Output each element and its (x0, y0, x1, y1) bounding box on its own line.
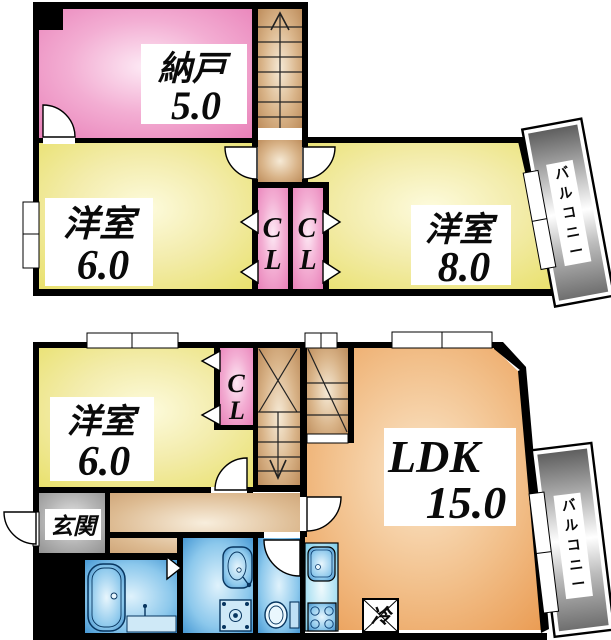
svg-text:コ: コ (566, 538, 582, 555)
lower-floor: 冷 (4, 332, 611, 640)
window-west6-upper (23, 202, 39, 268)
door-gap-toilet (264, 532, 300, 538)
closet-right-l: L (298, 245, 316, 276)
closet-left-c: C (263, 213, 282, 244)
svg-text:ル: ル (558, 186, 574, 203)
svg-text:ル: ル (563, 518, 579, 535)
closet-lower-l: L (228, 396, 245, 425)
toilet-tank (290, 602, 299, 628)
ldk-label: LDK (387, 431, 483, 482)
kitchen-counter (305, 543, 338, 631)
stairs-down-left-run (258, 348, 300, 485)
refrigerator-label: 冷 (371, 605, 394, 628)
upper-floor: バ ル コ ニ ー 納戸 5.0 洋室 6.0 洋室 8.0 C L C L (23, 2, 611, 308)
door-arc-entrance (4, 512, 36, 544)
west6-upper-size: 6.0 (77, 243, 130, 289)
stairs-landing (258, 140, 302, 182)
svg-text:ニ: ニ (565, 225, 581, 242)
toilet (265, 602, 299, 628)
stairs-bottom-landing (307, 434, 348, 443)
svg-text:ー: ー (571, 577, 587, 594)
svg-text:バ: バ (554, 165, 571, 183)
svg-text:ニ: ニ (568, 558, 584, 575)
bath-counter (127, 616, 176, 632)
west6-upper-label: 洋室 (63, 204, 140, 244)
entrance-label: 玄関 (50, 514, 100, 539)
ldk-size: 15.0 (426, 477, 507, 528)
floor-plan: バ ル コ ニ ー 納戸 5.0 洋室 6.0 洋室 8.0 C L C L (0, 0, 611, 640)
west8-label: 洋室 (425, 211, 498, 249)
closet-right-c: C (298, 213, 317, 244)
refrigerator: 冷 (363, 599, 398, 632)
closet-lower-c: C (227, 369, 245, 398)
wash-basin (223, 547, 252, 588)
door-gap-storage (43, 137, 75, 144)
west8-size: 8.0 (438, 245, 491, 291)
svg-text:ー: ー (568, 244, 584, 261)
svg-text:コ: コ (561, 205, 577, 222)
stairs-opening (258, 128, 302, 140)
storage-size: 5.0 (171, 83, 221, 128)
west6-lower-label: 洋室 (67, 403, 140, 441)
svg-text:バ: バ (561, 497, 577, 515)
west6-lower-size: 6.0 (78, 439, 131, 485)
closet-left-l: L (263, 245, 281, 276)
